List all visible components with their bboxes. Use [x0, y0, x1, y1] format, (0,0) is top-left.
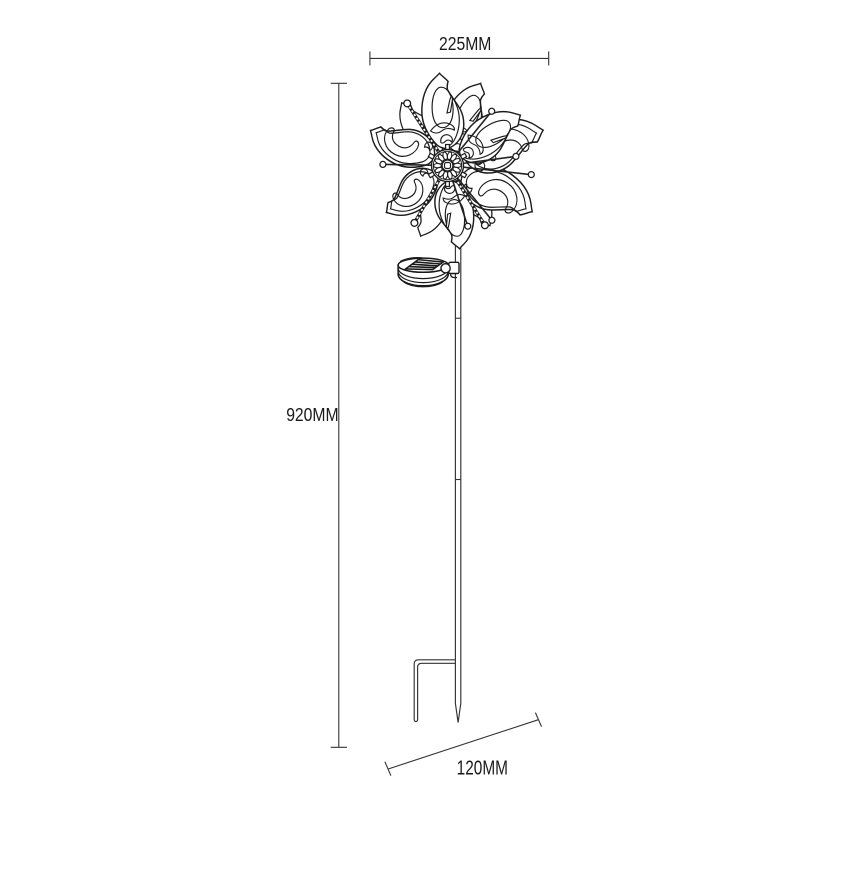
svg-text:920MM: 920MM: [286, 404, 338, 426]
svg-text:225MM: 225MM: [439, 33, 491, 55]
svg-text:120MM: 120MM: [457, 756, 508, 778]
